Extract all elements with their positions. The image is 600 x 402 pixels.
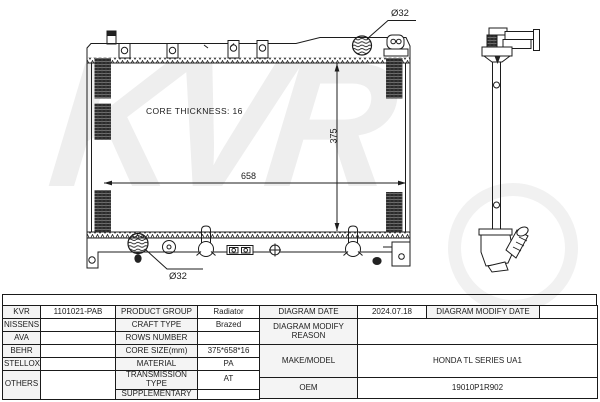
modify-reason-label-cell: DIAGRAM MODIFY REASON [260,319,358,345]
top-fin-strip [87,58,410,64]
locating-peg [372,257,381,265]
spec-value-cell: AT [198,371,260,390]
side-core-column [493,62,501,230]
bleed-pin-cap [107,31,116,36]
outlet-diameter-label: Ø32 [169,271,187,282]
oem-label-cell: OEM [260,378,358,399]
outlet-leader-line [146,250,203,269]
diagram-date-label-cell: DIAGRAM DATE [260,306,358,319]
spec-value-cell: 375*658*16 [198,345,260,358]
inlet-pipe-opening [353,36,372,55]
spec-label-cell: CRAFT TYPE [116,319,198,332]
modify-date-cell [540,306,598,319]
spec-value-cell [198,332,260,345]
dimension-lines [104,64,406,232]
diagram-date-cell: 2024.07.18 [358,306,427,319]
side-cushion-left [95,58,112,99]
brand-cell: AVA [3,332,41,345]
side-top-assembly [482,28,540,64]
spec-table-right: DIAGRAM DATE 2024.07.18 DIAGRAM MODIFY D… [259,305,598,399]
spec-label-cell: TRANSMISSION TYPE [116,371,198,390]
spec-table-left: KVR 1101021-PAB PRODUCT GROUP Radiator N… [2,305,260,400]
brand-cell: BEHR [3,345,41,358]
modify-reason-cell [358,319,598,345]
side-bottom-assembly [479,225,530,272]
core [87,58,410,238]
modify-date-label-cell: DIAGRAM MODIFY DATE [427,306,540,319]
radiator-cap [384,35,408,56]
cross-ref-cell [41,345,116,358]
outlet-pipe-opening [128,234,148,254]
top-tank [87,21,416,63]
spec-label-cell: ROWS NUMBER [116,332,198,345]
cross-ref-cell [41,371,116,400]
spec-label-cell: SUPPLEMENTARY [116,389,198,399]
brand-cell: KVR [3,306,41,319]
inlet-diameter-label: Ø32 [391,8,409,19]
core-thickness-label: CORE THICKNESS: 16 [146,106,243,116]
bottom-bracket [227,246,253,255]
radiator-line-art [0,0,600,300]
spec-label-cell: PRODUCT GROUP [116,306,198,319]
spec-value-cell: Brazed [198,319,260,332]
width-dimension-label: 658 [241,171,256,181]
spec-label-cell: CORE SIZE(mm) [116,345,198,358]
mounting-lug [344,226,363,257]
cross-ref-cell [41,358,116,371]
oem-cell: 19010P1R902 [358,378,598,399]
brand-cell: NISSENS [3,319,41,332]
bottom-bracket-right [383,242,410,266]
radiator-diagram: KVR [0,0,600,300]
drain-plug [134,254,141,263]
make-model-cell: HONDA TL SERIES UA1 [358,345,598,378]
cross-ref-cell [41,332,116,345]
brand-cell: STELLOX [3,358,41,371]
make-model-label-cell: MAKE/MODEL [260,345,358,378]
brand-cell: OTHERS [3,371,41,400]
radiator-spec-sheet: KVR [0,0,600,402]
front-view [87,21,416,270]
side-view [479,28,540,272]
mounting-lug [197,226,216,257]
drain-screw [269,244,281,257]
side-cushion-right [386,58,403,99]
spec-value-cell: Radiator [198,306,260,319]
part-number-cell: 1101021-PAB [41,306,116,319]
spec-value-cell: PA [198,358,260,371]
spec-value-cell [198,389,260,399]
height-dimension-label: 375 [329,128,339,143]
spec-label-cell: MATERIAL [116,358,198,371]
cross-ref-cell [41,319,116,332]
